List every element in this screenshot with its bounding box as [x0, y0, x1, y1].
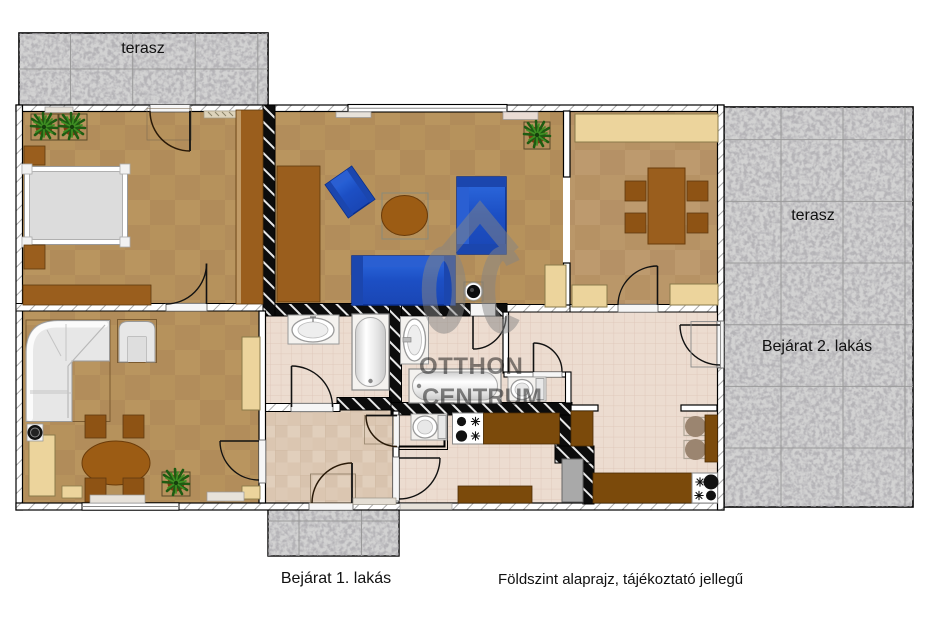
svg-text:terasz: terasz [121, 40, 165, 57]
svg-text:CENTRUM: CENTRUM [422, 384, 542, 411]
svg-text:terasz: terasz [791, 207, 835, 224]
svg-text:Földszint alaprajz, tájékoztat: Földszint alaprajz, tájékoztató jellegű [498, 571, 743, 588]
svg-text:Bejárat 1. lakás: Bejárat 1. lakás [281, 570, 391, 587]
svg-text:OTTHON: OTTHON [419, 353, 523, 380]
svg-text:Bejárat 2. lakás: Bejárat 2. lakás [762, 338, 872, 355]
